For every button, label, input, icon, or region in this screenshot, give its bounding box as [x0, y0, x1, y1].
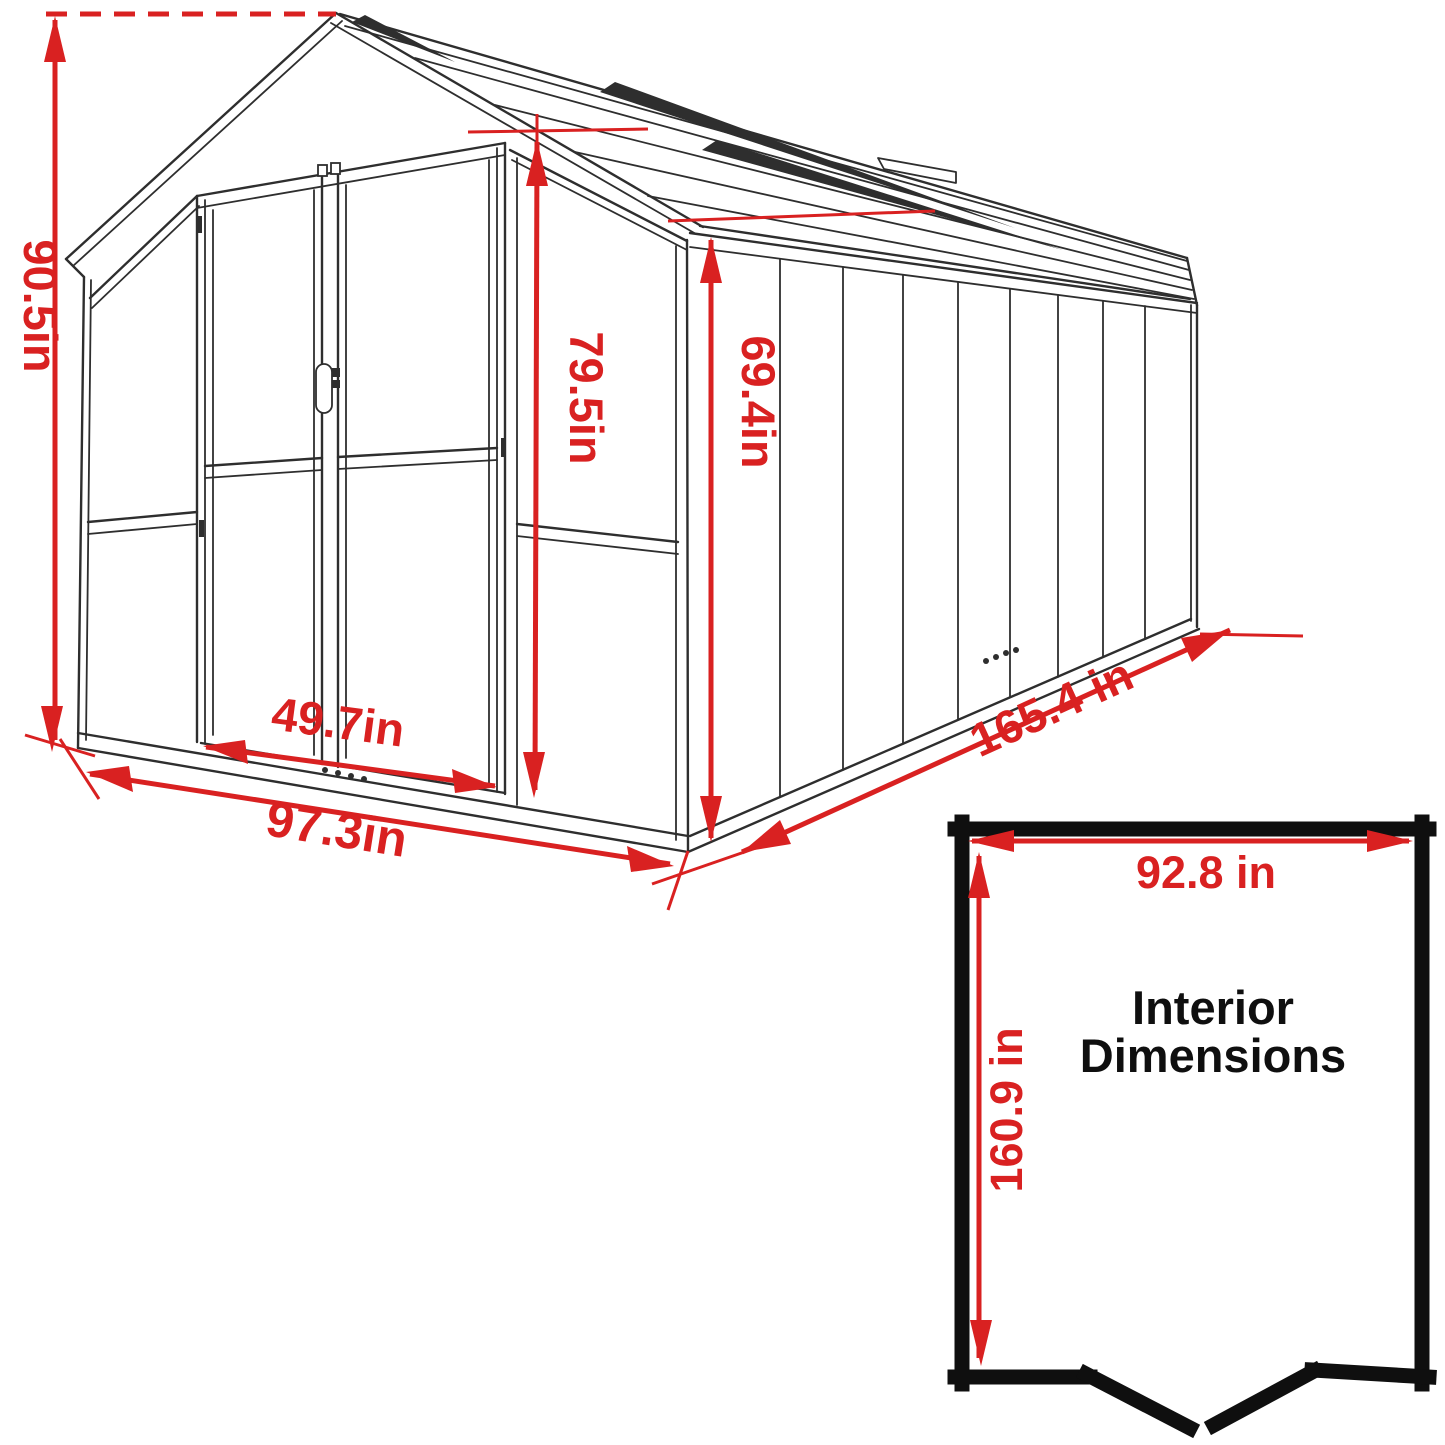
dim-label-door-height: 79.5in: [560, 331, 613, 464]
dim-label-eave-height: 69.4in: [732, 335, 785, 468]
left-panel-mid-rail-inner: [88, 524, 197, 534]
roof-glazing-bar: [415, 58, 1189, 270]
dim-side-length: 165.4 in: [652, 630, 1303, 884]
dim-label-overall-height: 90.5in: [14, 239, 67, 372]
side-eave-bottom: [690, 247, 1197, 313]
dim-witness-line: [668, 211, 935, 221]
door-head-beam: [197, 143, 505, 196]
screw-dot: [993, 654, 999, 660]
arrow-down-icon: [700, 796, 722, 842]
dim-witness-line: [1200, 634, 1303, 636]
door-stile-cap: [331, 163, 340, 174]
dim-witness-line: [468, 129, 648, 132]
inset-door-flap-left: [1086, 1374, 1190, 1428]
arrow-down-icon: [523, 752, 545, 798]
dim-interior-width: 92.8 in: [968, 830, 1413, 898]
arrow-up-icon: [968, 852, 990, 898]
door-handle-icon: [316, 364, 340, 413]
screw-dot: [1013, 647, 1019, 653]
gable-right-edge: [336, 13, 703, 227]
dim-label-side-length: 165.4 in: [962, 647, 1141, 767]
door-mid-rail: [205, 458, 322, 466]
arrow-right-icon: [627, 846, 674, 872]
diagram-canvas: 90.5in 79.5in 69.4in 49.7in: [0, 0, 1445, 1445]
screw-dot: [983, 658, 989, 664]
gable-left-overhang: [66, 259, 84, 277]
hinge-icon: [501, 438, 506, 457]
screw-dot: [1003, 650, 1009, 656]
inset-title-line1: Interior: [1132, 981, 1294, 1034]
dim-witness-line: [25, 735, 95, 756]
inset-wall-bottom-right: [1312, 1370, 1429, 1377]
dim-label-interior-width: 92.8 in: [1136, 847, 1276, 898]
dim-witness-line: [668, 851, 688, 910]
dim-interior-depth: 160.9 in: [968, 852, 1032, 1366]
handle-lever: [316, 364, 332, 413]
screw-dot: [348, 773, 354, 779]
dim-overall-height: 90.5in: [14, 14, 336, 756]
door-mid-rail-inner: [338, 460, 497, 469]
dim-line: [535, 142, 537, 790]
door-mid-rail-inner: [205, 470, 322, 478]
door-head-beam-inner: [197, 155, 505, 208]
hinge-icon: [199, 520, 204, 537]
front-left-corner-inner: [86, 280, 91, 740]
arrow-up-icon: [700, 237, 722, 283]
dim-label-door-width: 49.7in: [269, 687, 408, 757]
roof-shadow-wedge: [352, 15, 455, 62]
roof-glazing-bar: [575, 152, 1192, 290]
left-panel-mid-rail: [88, 512, 197, 522]
front-right-corner: [687, 240, 688, 850]
screw-dot: [322, 767, 328, 773]
dimension-annotations: 90.5in 79.5in 69.4in 49.7in: [14, 14, 1303, 910]
screw-dot: [361, 776, 367, 782]
dim-front-width: 97.3in: [60, 739, 688, 910]
greenhouse-dimension-diagram: 90.5in 79.5in 69.4in 49.7in: [0, 0, 1445, 1445]
interior-floorplan-inset: 92.8 in 160.9 in Interior Dimensions: [955, 822, 1429, 1428]
inset-title-line2: Dimensions: [1080, 1029, 1346, 1082]
door-stile-cap: [318, 165, 327, 176]
gable-left-fascia: [73, 21, 342, 266]
inset-door-flap-right: [1214, 1371, 1314, 1425]
arrow-up-icon: [44, 16, 66, 62]
roof-ridge-line: [340, 14, 1187, 258]
screw-dot: [335, 770, 341, 776]
front-left-corner: [78, 277, 84, 748]
hinge-icon: [197, 216, 202, 233]
roof-shadow-wedge: [600, 82, 1015, 228]
front-gable: [66, 13, 703, 277]
left-panel-top-rail: [90, 196, 197, 298]
dim-label-interior-depth: 160.9 in: [981, 1027, 1032, 1192]
roof: [340, 14, 1197, 305]
arrow-down-icon: [970, 1320, 992, 1366]
door-mid-rail: [338, 448, 497, 457]
